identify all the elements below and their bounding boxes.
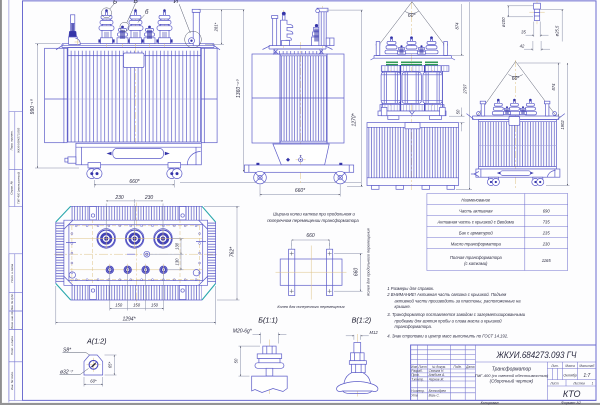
svg-text:2 ВНИМАНИЕ! Активная часть: 2 ВНИМАНИЕ! Активная часть связана с кры… bbox=[386, 292, 506, 297]
svg-text:Листов: Листов bbox=[572, 382, 585, 386]
svg-text:1 Размеры для справок.: 1 Размеры для справок. bbox=[387, 286, 434, 291]
svg-text:Т.контр.: Т.контр. bbox=[411, 377, 424, 381]
svg-text:Взам. инв. №: Взам. инв. № bbox=[10, 312, 14, 329]
svg-text:150: 150 bbox=[115, 303, 123, 308]
svg-text:Бак с арматурой: Бак с арматурой bbox=[459, 231, 493, 236]
svg-text:Утв.: Утв. bbox=[411, 393, 418, 397]
svg-text:Масло трансформатора: Масло трансформатора bbox=[451, 242, 502, 247]
svg-text:трансформатора.: трансформатора. bbox=[395, 324, 432, 329]
svg-text:60*: 60* bbox=[90, 378, 97, 383]
svg-text:М20-6g*: М20-6g* bbox=[233, 329, 253, 335]
svg-text:230: 230 bbox=[542, 242, 551, 247]
svg-text:А(1:2): А(1:2) bbox=[86, 337, 107, 346]
svg-text:50: 50 bbox=[455, 109, 460, 114]
svg-text:активной части производить за: активной части производить за пластины, … bbox=[395, 298, 522, 303]
svg-text:Чернов Ж.: Чернов Ж. bbox=[429, 377, 445, 381]
svg-text:60°: 60° bbox=[408, 13, 416, 19]
svg-text:3. Трансформатор поставляется: 3. Трансформатор поставляется заводом с … bbox=[387, 312, 525, 317]
svg-text:281*: 281* bbox=[214, 22, 219, 32]
svg-text:Перв. примен.: Перв. примен. bbox=[10, 130, 14, 150]
svg-text:60°: 60° bbox=[512, 76, 520, 82]
svg-text:50: 50 bbox=[233, 358, 238, 363]
svg-text:пробками для взятия пробы и: пробками для взятия пробы и слива масла … bbox=[395, 318, 503, 323]
svg-text:230: 230 bbox=[114, 195, 124, 201]
svg-text:735: 735 bbox=[543, 220, 551, 225]
svg-text:Вазь С.: Вазь С. bbox=[429, 393, 440, 397]
svg-text:660*: 660* bbox=[295, 188, 306, 194]
svg-text:35: 35 bbox=[521, 30, 526, 35]
svg-text:Трансформатор: Трансформатор bbox=[492, 367, 532, 373]
svg-text:Инв. № дубл.: Инв. № дубл. bbox=[10, 293, 14, 310]
svg-text:Часть активная: Часть активная bbox=[459, 209, 493, 214]
svg-text:4. Знак строповки и центр мас: 4. Знак строповки и центр масс выполнить… bbox=[387, 333, 508, 338]
svg-text:762*: 762* bbox=[230, 246, 236, 257]
svg-text:Активная часть с крышкой с Вво: Активная часть с крышкой с Вводами bbox=[437, 220, 515, 225]
svg-text:230: 230 bbox=[144, 195, 154, 201]
svg-text:Справ. №: Справ. № bbox=[10, 180, 14, 194]
svg-text:150: 150 bbox=[133, 303, 141, 308]
svg-text:874: 874 bbox=[455, 22, 460, 30]
svg-text:Наименование: Наименование bbox=[461, 198, 491, 203]
svg-text:130: 130 bbox=[174, 242, 179, 250]
svg-text:Безноздрев: Безноздрев bbox=[429, 389, 447, 393]
svg-text:В: В bbox=[134, 0, 139, 5]
svg-text:1360⁻⁴⁰: 1360⁻⁴⁰ bbox=[236, 79, 242, 98]
svg-text:Б: Б bbox=[113, 0, 117, 5]
svg-text:И: И bbox=[174, 0, 179, 5]
svg-text:874: 874 bbox=[551, 83, 556, 91]
svg-text:130: 130 bbox=[174, 258, 179, 266]
svg-text:ТМГ-400 (уменьшенный): ТМГ-400 (уменьшенный) bbox=[17, 172, 21, 204]
svg-text:150: 150 bbox=[151, 303, 159, 308]
svg-text:(с катками): (с катками) bbox=[464, 261, 488, 266]
svg-text:Колея для поперечного перем: Колея для поперечного перемещения bbox=[277, 305, 344, 309]
svg-text:660: 660 bbox=[353, 268, 359, 277]
svg-text:В(1:2): В(1:2) bbox=[352, 315, 372, 324]
svg-text:ø25,5: ø25,5 bbox=[555, 25, 560, 36]
svg-text:Масштаб: Масштаб bbox=[579, 364, 594, 368]
svg-text:(Сборочный чертеж): (Сборочный чертеж) bbox=[490, 379, 534, 384]
svg-text:660: 660 bbox=[306, 233, 315, 239]
svg-text:ЖКУИ.684273.093: ЖКУИ.684273.093 bbox=[17, 127, 21, 154]
svg-text:Н.контр.: Н.контр. bbox=[411, 389, 425, 393]
svg-text:690: 690 bbox=[543, 209, 551, 214]
svg-text:Копировал: Копировал bbox=[481, 401, 499, 405]
svg-text:1270*: 1270* bbox=[352, 112, 358, 126]
svg-text:крышке.: крышке. bbox=[395, 304, 411, 309]
svg-text:65*: 65* bbox=[108, 361, 113, 368]
svg-text:1294*: 1294* bbox=[122, 317, 136, 323]
svg-text:Дата: Дата bbox=[465, 365, 475, 369]
svg-text:Полная трансформатора: Полная трансформатора bbox=[450, 255, 503, 260]
svg-text:Масса: Масса bbox=[565, 364, 575, 368]
svg-text:ø100: ø100 bbox=[501, 17, 506, 27]
svg-text:990⁻¹⁰: 990⁻¹⁰ bbox=[30, 99, 36, 115]
svg-text:Ширина колеи катков при пр: Ширина колеи катков при продольном и bbox=[273, 211, 355, 216]
svg-text:Инв. № подл.: Инв. № подл. bbox=[10, 371, 14, 390]
svg-text:1: 1 bbox=[592, 382, 594, 386]
svg-text:Подп. и дата: Подп. и дата bbox=[10, 336, 14, 355]
svg-text:1165: 1165 bbox=[542, 258, 552, 263]
svg-text:Лит.: Лит. bbox=[550, 364, 559, 368]
svg-text:поперечном перемещении транс: поперечном перемещении трансформатора bbox=[267, 218, 359, 223]
svg-text:М12: М12 bbox=[370, 330, 379, 335]
svg-text:ТМГ-400 (со сменной обестоимос: ТМГ-400 (со сменной обестоимостью) bbox=[474, 373, 549, 378]
svg-text:235: 235 bbox=[542, 231, 551, 236]
svg-text:1:7: 1:7 bbox=[583, 373, 590, 379]
svg-text:660*: 660* bbox=[129, 179, 140, 185]
svg-text:Подп.: Подп. bbox=[454, 365, 463, 369]
svg-text:ЖКУИ.684273.093 ГЧ: ЖКУИ.684273.093 ГЧ bbox=[496, 350, 577, 361]
svg-text:Колея для продольного перем: Колея для продольного перемещения bbox=[366, 228, 370, 295]
svg-text:Октябр: Октябр bbox=[563, 373, 576, 377]
svg-text:Б(1:1): Б(1:1) bbox=[258, 315, 277, 324]
svg-text:2797: 2797 bbox=[462, 84, 467, 95]
svg-text:42: 42 bbox=[520, 44, 525, 49]
svg-text:1902: 1902 bbox=[560, 120, 565, 130]
svg-text:КТО: КТО bbox=[563, 389, 581, 399]
svg-text:Лист: Лист bbox=[549, 382, 559, 386]
svg-text:Формат А2: Формат А2 bbox=[561, 401, 581, 405]
svg-text:Подп. и дата: Подп. и дата bbox=[10, 263, 14, 282]
